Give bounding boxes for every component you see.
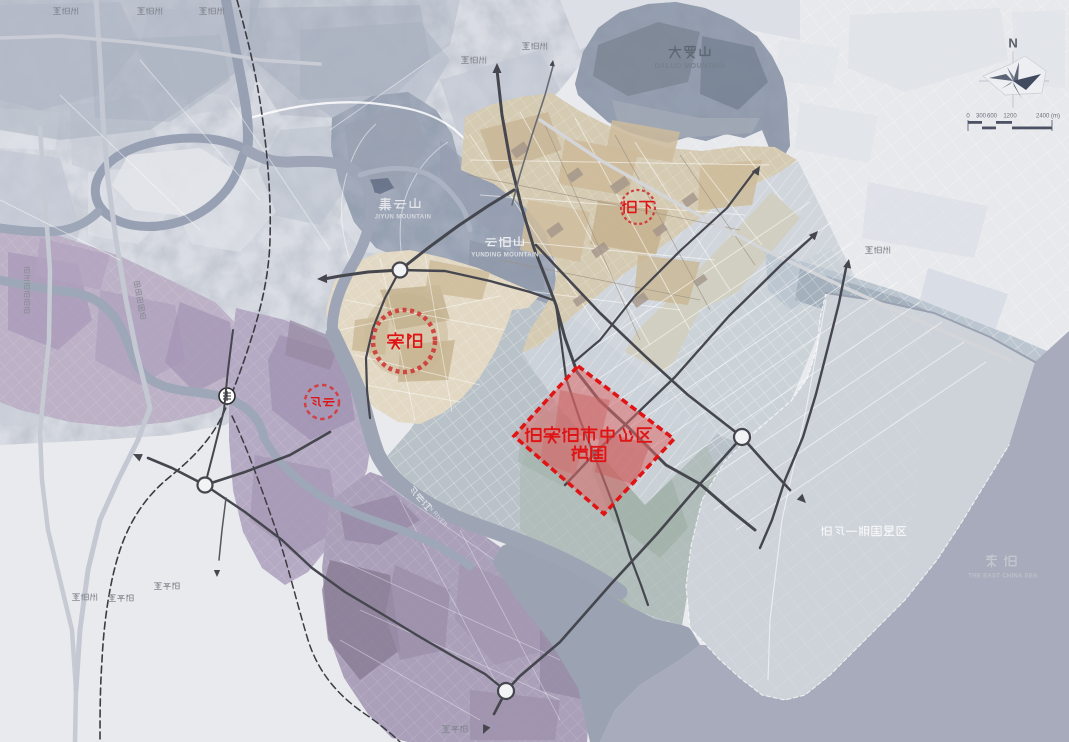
svg-text:YUNDING MOUNTAIN: YUNDING MOUNTAIN [471, 253, 539, 259]
svg-text:DALUO MOUNTAIN: DALUO MOUNTAIN [654, 63, 725, 70]
svg-text:JIYUN MOUNTAIN: JIYUN MOUNTAIN [375, 215, 432, 221]
svg-text:1200: 1200 [1003, 114, 1017, 120]
svg-text:300: 300 [976, 114, 987, 120]
svg-text:2400 (m): 2400 (m) [1036, 114, 1060, 120]
svg-text:THE EAST CHINA SEA: THE EAST CHINA SEA [968, 574, 1038, 580]
svg-text:N: N [1008, 35, 1017, 50]
svg-text:600: 600 [987, 114, 998, 120]
